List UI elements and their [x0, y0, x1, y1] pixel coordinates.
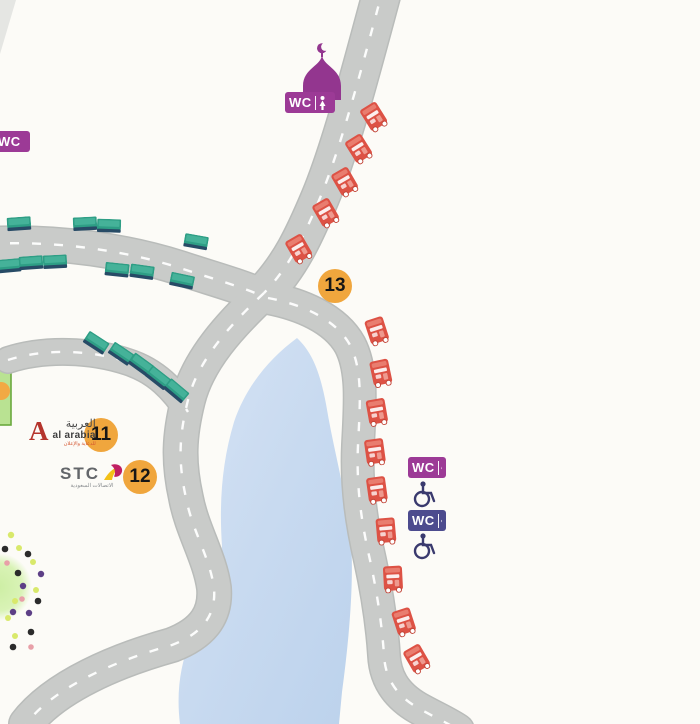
wheelchair-icon: [411, 533, 439, 561]
stc-logo: STC الاتصالات السعودية: [60, 463, 124, 490]
food-truck-icon: [364, 438, 387, 467]
food-truck-icon: [402, 643, 432, 676]
corner-road-sliver: [0, 0, 16, 54]
wc-label: WC: [412, 514, 435, 527]
wc-badge: WC: [0, 131, 30, 152]
parking-stall-icon: [73, 216, 98, 231]
confetti-dot: [2, 546, 9, 553]
parking-stall-icon: [97, 219, 121, 233]
confetti-dot: [4, 560, 10, 566]
parking-stall-icon: [104, 262, 129, 278]
confetti-dot: [25, 551, 32, 558]
food-truck-icon: [383, 566, 403, 594]
stc-wordmark: STC: [60, 465, 100, 482]
stc-flame-icon: [102, 463, 124, 483]
restroom-person-icon: [441, 461, 442, 475]
confetti-dot: [26, 610, 32, 616]
wc-label: WC: [0, 135, 21, 148]
confetti-dot: [28, 629, 35, 636]
food-truck-icon: [364, 316, 390, 347]
marker-label: 13: [324, 275, 345, 297]
parking-stall-icon: [43, 254, 68, 269]
confetti-dot: [5, 615, 11, 621]
location-marker-12: 12: [123, 460, 157, 494]
confetti-dot: [8, 532, 14, 538]
parking-stall-icon: [0, 258, 22, 273]
wc-label: WC: [289, 96, 312, 109]
confetti-dot: [12, 633, 18, 639]
wheelchair-icon: [411, 481, 439, 509]
confetti-dot: [10, 609, 16, 615]
stc-arabic: الاتصالات السعودية: [70, 483, 113, 490]
event-map: WC WC WC WC: [0, 0, 700, 724]
confetti-dot: [20, 583, 26, 589]
confetti-dot: [38, 571, 44, 577]
wc-badge: WC: [408, 510, 446, 531]
confetti-dot: [12, 598, 18, 604]
confetti-dot: [15, 570, 22, 577]
confetti-dot: [35, 598, 42, 605]
parking-stall-icon: [183, 233, 209, 250]
al-arabia-latin: al arabia: [53, 431, 96, 442]
al-arabia-logo: A العربية al arabia للدعاية والإعلان: [29, 419, 96, 447]
confetti-dot: [19, 596, 25, 602]
confetti-dot: [10, 644, 17, 651]
al-arabia-initial: A: [29, 419, 49, 443]
al-arabia-tagline: للدعاية والإعلان: [64, 441, 96, 447]
confetti-dot: [30, 559, 36, 565]
location-marker-13: 13: [318, 269, 352, 303]
parking-stall-icon: [19, 255, 44, 270]
wc-badge: WC: [408, 457, 446, 478]
al-arabia-arabic: العربية: [66, 419, 96, 431]
confetti-dot: [28, 644, 34, 650]
wc-label: WC: [412, 461, 435, 474]
food-truck-icon: [375, 517, 396, 545]
restroom-person-icon: [441, 514, 442, 528]
marker-label: 12: [129, 466, 150, 488]
restroom-person-icon: [319, 96, 326, 110]
parking-stall-icon: [7, 216, 32, 231]
food-truck-icon: [366, 476, 389, 505]
confetti-dot: [33, 587, 39, 593]
wc-badge: WC: [285, 92, 335, 113]
confetti-dot: [16, 545, 22, 551]
map-canvas: [0, 0, 700, 724]
